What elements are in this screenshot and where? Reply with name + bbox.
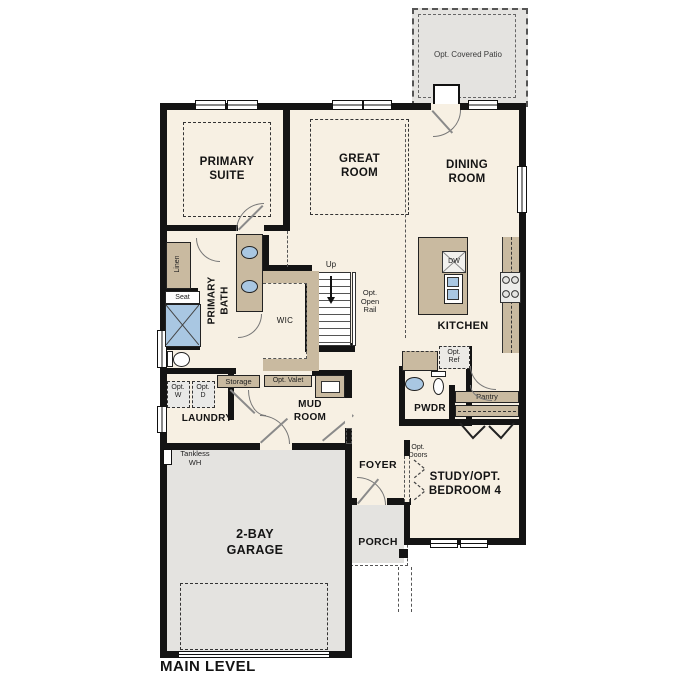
primary-suite-label: PRIMARY SUITE (183, 155, 271, 184)
window (332, 100, 363, 110)
kitchen-label: KITCHEN (432, 320, 494, 334)
dryer-icon: Opt. D (192, 381, 215, 408)
garage-door-outline (180, 583, 328, 650)
stair-arrow-line (330, 276, 332, 298)
opt-w-label: Opt. W (168, 384, 188, 400)
stair-arrow-head (327, 297, 335, 304)
toilet-bowl (433, 378, 444, 395)
window (227, 100, 258, 110)
vanity-sink-icon (241, 280, 258, 293)
great-room-label: GREAT ROOM (310, 152, 409, 181)
linen-label: Linen (174, 242, 182, 286)
mud-foyer-dash (346, 428, 352, 444)
window (195, 100, 226, 110)
opt-valet-label: Opt. Valet (265, 377, 311, 385)
great-room-dash-stub (287, 231, 288, 267)
window (363, 100, 392, 110)
water-heater-icon (163, 449, 172, 465)
window (468, 100, 498, 110)
opt-open-rail-label: Opt. Open Rail (354, 289, 386, 315)
wall-pwdr-left (399, 366, 405, 426)
laundry-label: LAUNDRY (176, 413, 238, 426)
garage-label: 2-BAY GARAGE (200, 527, 310, 558)
pwdr-label: PWDR (405, 403, 455, 416)
vanity-sink-icon (241, 246, 258, 259)
porch-label: PORCH (350, 536, 406, 549)
wic-shelf-bottom (263, 359, 319, 371)
tankless-wh-label: Tankless WH (174, 450, 216, 467)
mud-foyer-opening (345, 398, 352, 428)
wall-left (160, 103, 167, 658)
walkway-dash-right (411, 567, 412, 612)
toilet-bowl (173, 352, 190, 367)
storage-label: Storage (218, 378, 259, 387)
pantry-shelf-dash (455, 405, 519, 417)
bifold-doors-icon (458, 421, 516, 441)
garage-door-line (178, 651, 330, 658)
kitchen-counter-low (402, 351, 438, 371)
main-level-title: MAIN LEVEL (160, 658, 300, 677)
study-label: STUDY/OPT. BEDROOM 4 (413, 470, 517, 499)
window (460, 539, 488, 548)
opt-ref-label: Opt. Ref (440, 349, 468, 365)
opt-doors-opening (404, 456, 410, 502)
dishwasher-icon: DW (442, 251, 466, 273)
opt-d-label: Opt. D (193, 384, 213, 400)
wic-shelf-top (263, 271, 319, 283)
seat-label: Seat (166, 294, 199, 302)
valet-cabinet: Opt. Valet (264, 375, 312, 387)
porch-post (399, 549, 408, 558)
mud-room-label: MUD ROOM (284, 399, 336, 424)
wall-primary-divider (283, 103, 290, 231)
wall-bath-bottom (160, 368, 236, 374)
opt-doors-icon (412, 458, 428, 502)
patio-door-opening (431, 103, 460, 110)
primary-bath-label: PRIMARY BATH (207, 266, 232, 336)
wic-shelf-right (307, 283, 319, 359)
powder-sink-icon (405, 377, 424, 391)
mud-lockers (315, 375, 345, 398)
opt-doors-label: Opt. Doors (403, 444, 433, 460)
stairs-up-label: Up (318, 260, 344, 269)
storage-cabinet: Storage (217, 375, 260, 388)
dishwasher-label: DW (443, 258, 465, 266)
patio-label: Opt. Covered Patio (412, 50, 524, 59)
wall-vanity-right (263, 235, 269, 275)
window (430, 539, 458, 548)
patio-door-landing (433, 84, 460, 104)
foyer-label: FOYER (350, 459, 406, 472)
washer-icon: Opt. W (167, 381, 190, 408)
fridge-icon: Opt. Ref (439, 346, 470, 369)
shower-seat: Seat (165, 291, 200, 304)
mud-garage-opening (260, 443, 292, 450)
window (517, 166, 527, 213)
shower-icon (165, 304, 201, 347)
walkway-dash-left (398, 567, 399, 612)
island-sink-icon (444, 274, 463, 304)
dining-room-label: DINING ROOM (437, 158, 497, 187)
wic-shelf-dash (263, 283, 307, 359)
window (157, 406, 167, 433)
wall-primary-bottom-left (160, 225, 238, 231)
range-icon (500, 272, 521, 303)
toilet-icon (431, 371, 446, 377)
floor-plan: Opt. Covered Patio (0, 0, 687, 687)
